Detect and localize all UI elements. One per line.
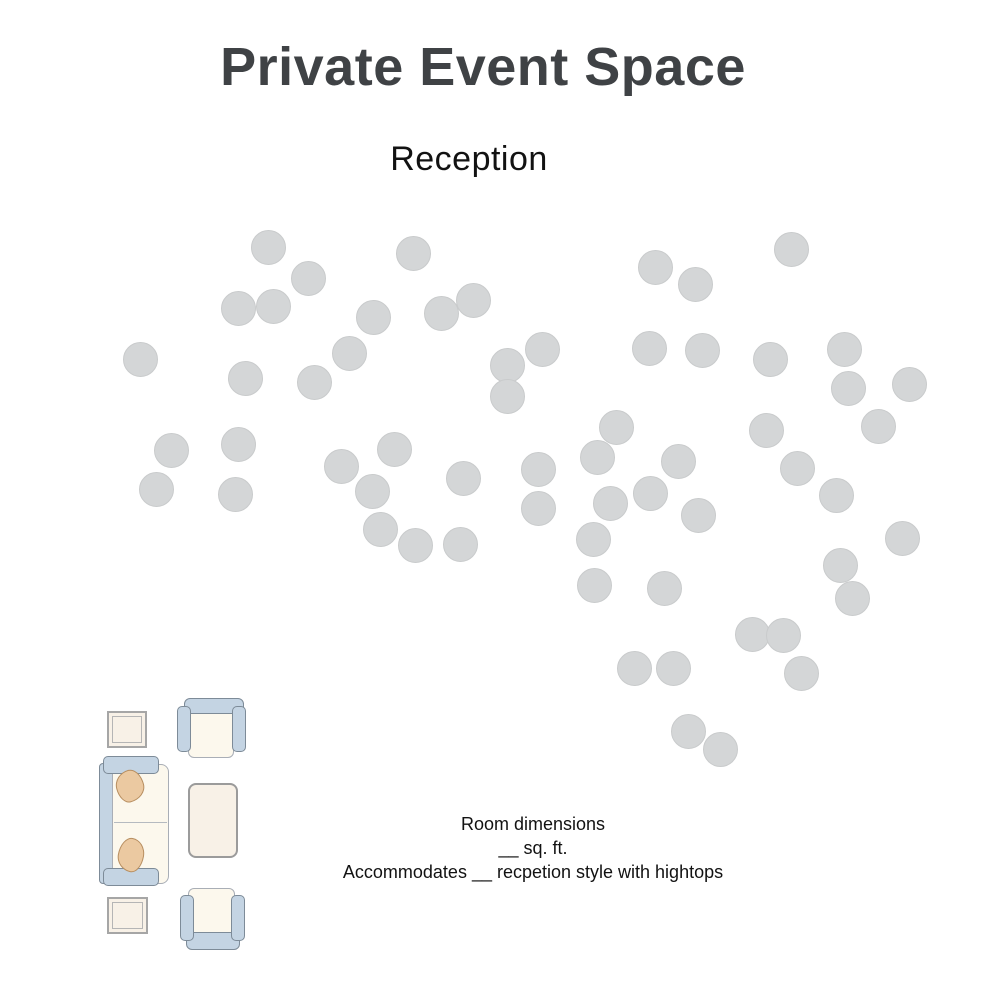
hightop-dot: [576, 522, 611, 557]
hightop-dot: [599, 410, 634, 445]
hightop-dot: [221, 291, 256, 326]
armchair-top-arm-left: [177, 706, 191, 752]
caption-square-footage: __ sq. ft.: [343, 836, 723, 860]
hightop-dot: [678, 267, 713, 302]
hightop-dot: [766, 618, 801, 653]
hightop-dot: [735, 617, 770, 652]
hightop-dot: [633, 476, 668, 511]
hightop-dot: [424, 296, 459, 331]
hightop-dot: [577, 568, 612, 603]
hightop-dot: [885, 521, 920, 556]
hightop-dot: [774, 232, 809, 267]
hightop-dot: [297, 365, 332, 400]
hightop-dot: [490, 348, 525, 383]
hightop-dot: [228, 361, 263, 396]
hightop-dot: [490, 379, 525, 414]
hightop-dot: [521, 491, 556, 526]
hightop-dot: [251, 230, 286, 265]
hightop-dot: [218, 477, 253, 512]
hightop-dot: [363, 512, 398, 547]
hightop-dot: [780, 451, 815, 486]
hightop-dot: [396, 236, 431, 271]
hightop-dot: [521, 452, 556, 487]
sofa-cushion-divider: [114, 822, 167, 823]
hightop-dot: [324, 449, 359, 484]
armchair-top-arm-right: [232, 706, 246, 752]
hightop-dot: [638, 250, 673, 285]
hightop-dot: [355, 474, 390, 509]
side-table-bottom-icon: [107, 897, 148, 934]
armchair-top-icon: [177, 697, 246, 759]
armchair-top-seat: [188, 709, 234, 758]
hightop-dot: [835, 581, 870, 616]
sofa-icon: [98, 755, 173, 887]
armchair-bottom-arm-left: [180, 895, 194, 941]
hightop-dot: [632, 331, 667, 366]
hightop-dot: [671, 714, 706, 749]
hightop-dot: [446, 461, 481, 496]
hightop-dot: [861, 409, 896, 444]
hightop-dot: [703, 732, 738, 767]
hightop-dot: [593, 486, 628, 521]
hightop-dot: [749, 413, 784, 448]
armchair-bottom-arm-right: [231, 895, 245, 941]
hightop-dot: [123, 342, 158, 377]
hightop-dot: [139, 472, 174, 507]
hightop-dot: [892, 367, 927, 402]
hightop-dot: [681, 498, 716, 533]
hightop-dot: [656, 651, 691, 686]
armchair-bottom-icon: [179, 887, 246, 951]
hightop-dot: [291, 261, 326, 296]
hightop-dot: [221, 427, 256, 462]
hightop-dot: [525, 332, 560, 367]
hightop-dot: [332, 336, 367, 371]
hightop-dot: [647, 571, 682, 606]
coffee-table-icon: [188, 783, 238, 858]
hightop-dot: [617, 651, 652, 686]
hightop-dot: [377, 432, 412, 467]
hightop-dot: [685, 333, 720, 368]
hightop-dot: [154, 433, 189, 468]
hightop-dot: [356, 300, 391, 335]
event-space-flyer: Private Event Space Reception: [0, 0, 1000, 1000]
caption-block: Room dimensions __ sq. ft. Accommodates …: [343, 812, 723, 884]
hightop-dot: [753, 342, 788, 377]
hightop-dot: [831, 371, 866, 406]
hightop-dot: [661, 444, 696, 479]
hightop-dot: [827, 332, 862, 367]
hightop-dot: [580, 440, 615, 475]
hightop-dot: [819, 478, 854, 513]
hightop-dot: [398, 528, 433, 563]
hightop-dot: [256, 289, 291, 324]
hightop-dot: [784, 656, 819, 691]
hightop-dot: [456, 283, 491, 318]
caption-room-dimensions: Room dimensions: [343, 812, 723, 836]
side-table-top-icon: [107, 711, 147, 748]
hightop-dot: [823, 548, 858, 583]
hightop-dot: [443, 527, 478, 562]
caption-capacity: Accommodates __ recpetion style with hig…: [343, 860, 723, 884]
